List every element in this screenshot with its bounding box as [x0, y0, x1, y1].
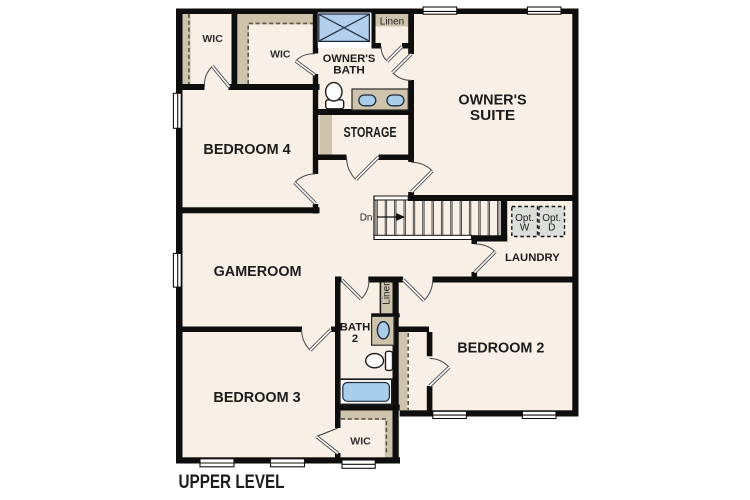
svg-text:LAUNDRY: LAUNDRY	[505, 252, 560, 264]
svg-text:SUITE: SUITE	[470, 108, 516, 124]
svg-text:D: D	[548, 223, 555, 234]
svg-text:UPPER LEVEL: UPPER LEVEL	[179, 471, 285, 493]
svg-text:BATH: BATH	[333, 65, 365, 77]
svg-text:OWNER'S: OWNER'S	[458, 93, 527, 109]
svg-text:WIC: WIC	[202, 33, 223, 45]
svg-text:2: 2	[352, 333, 358, 345]
svg-text:GAMEROOM: GAMEROOM	[214, 264, 302, 280]
svg-text:WIC: WIC	[350, 436, 371, 448]
svg-text:BEDROOM 2: BEDROOM 2	[457, 341, 544, 357]
svg-text:W: W	[520, 223, 530, 234]
svg-text:OWNER'S: OWNER'S	[323, 53, 376, 65]
svg-text:Linen: Linen	[380, 16, 404, 27]
svg-text:BEDROOM 4: BEDROOM 4	[203, 142, 290, 158]
svg-text:Dn: Dn	[360, 212, 373, 223]
svg-text:BEDROOM 3: BEDROOM 3	[213, 390, 300, 406]
svg-text:Linen: Linen	[381, 280, 392, 304]
svg-text:WIC: WIC	[270, 49, 291, 61]
svg-text:BATH: BATH	[340, 322, 371, 334]
svg-text:STORAGE: STORAGE	[344, 125, 397, 141]
